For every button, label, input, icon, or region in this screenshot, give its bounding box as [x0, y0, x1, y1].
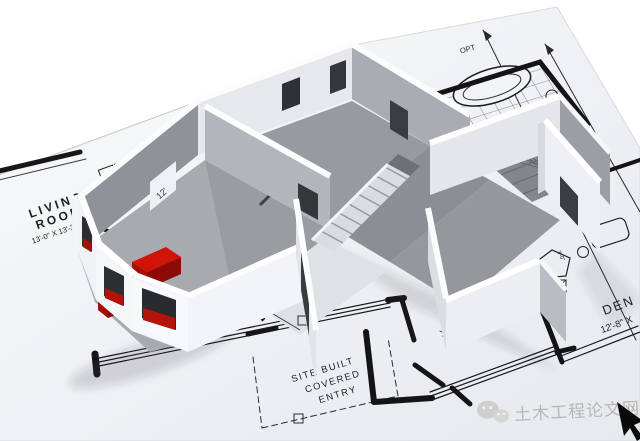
render-canvas: 51'-4" OPT [0, 0, 640, 441]
floor-plan-render: 51'-4" OPT [0, 0, 640, 441]
